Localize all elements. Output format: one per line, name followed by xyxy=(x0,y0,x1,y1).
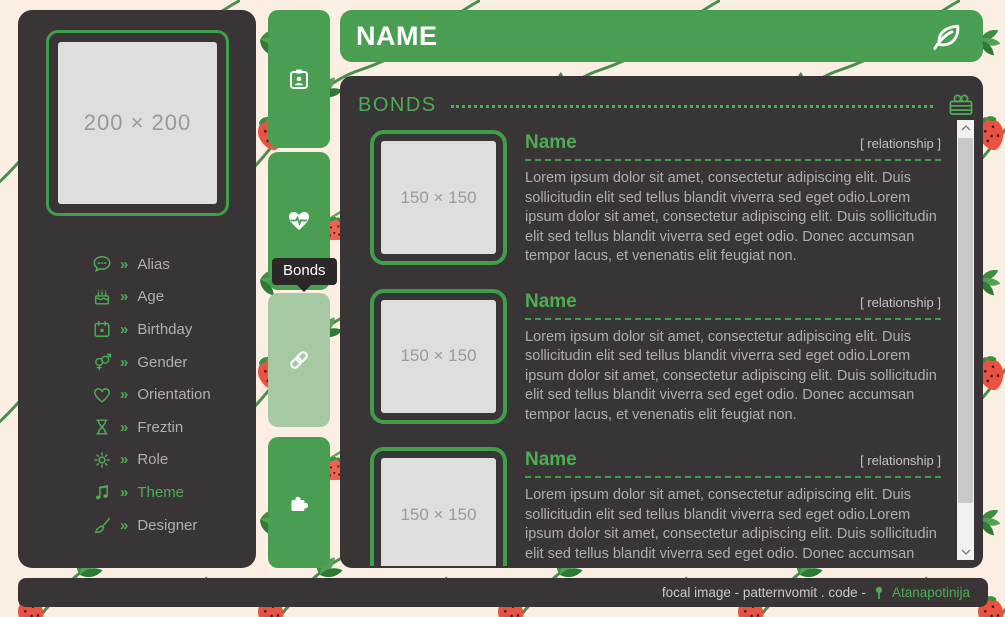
sidebar-item-age: » Age xyxy=(18,281,256,314)
comment-icon xyxy=(92,254,112,274)
calendar-icon xyxy=(92,319,112,339)
sidebar-item-theme: » Theme xyxy=(18,476,256,509)
venus-mars-icon xyxy=(92,352,112,372)
sidebar-item-label: Birthday xyxy=(137,321,192,338)
bond-image-frame: 150 × 150 xyxy=(370,130,507,265)
footer-credit-link[interactable]: Atanapotinija xyxy=(892,585,970,600)
page-title: NAME xyxy=(356,21,438,52)
hourglass-icon xyxy=(92,417,112,437)
gear-icon xyxy=(92,450,112,470)
chevron-right-icon: » xyxy=(120,386,128,403)
dashed-divider xyxy=(525,318,941,320)
chevron-right-icon: » xyxy=(120,354,128,371)
leaf-icon xyxy=(929,20,963,52)
bond-description: Lorem ipsum dolor sit amet, consectetur … xyxy=(525,486,941,566)
sidebar-item-freztin: » Freztin xyxy=(18,411,256,444)
chevron-right-icon: » xyxy=(120,451,128,468)
sidebar-item-label: Orientation xyxy=(137,386,210,403)
tab-extras[interactable] xyxy=(268,437,330,568)
link-icon xyxy=(287,348,311,372)
profile-sidebar: 200 × 200 » Alias » Age xyxy=(18,10,256,568)
sidebar-item-label: Freztin xyxy=(137,419,183,436)
scrollbar[interactable] xyxy=(957,120,974,560)
bonds-section-header: BONDS xyxy=(358,90,975,120)
chevron-down-icon xyxy=(961,549,971,555)
bond-relationship: [ relationship ] xyxy=(860,453,941,468)
profile-field-list: » Alias » Age » B xyxy=(18,248,256,541)
sidebar-item-label: Gender xyxy=(137,354,187,371)
sidebar-item-designer: » Designer xyxy=(18,509,256,542)
sidebar-item-label: Age xyxy=(137,288,164,305)
heart-pulse-icon xyxy=(287,209,311,233)
chevron-right-icon: » xyxy=(120,321,128,338)
bond-image-placeholder: 150 × 150 xyxy=(381,141,496,254)
chevron-right-icon: » xyxy=(120,517,128,534)
footer-credit: focal image - patternvomit . code - xyxy=(662,585,866,600)
chevron-right-icon: » xyxy=(120,256,128,273)
sidebar-item-gender: » Gender xyxy=(18,346,256,379)
bond-relationship: [ relationship ] xyxy=(860,136,941,151)
bond-entry-list: 150 × 150 Name [ relationship ] Lorem ip… xyxy=(370,130,941,566)
bonds-section-title: BONDS xyxy=(358,94,437,117)
bonds-panel: BONDS 150 × 150 Name [ re xyxy=(340,76,983,568)
sidebar-item-label: Role xyxy=(137,451,168,468)
theme-link[interactable]: Theme xyxy=(137,484,184,501)
music-icon xyxy=(92,482,112,502)
sidebar-item-orientation: » Orientation xyxy=(18,378,256,411)
profile-image-frame: 200 × 200 xyxy=(46,30,229,216)
scroll-down-button[interactable] xyxy=(957,544,974,560)
tab-profile[interactable] xyxy=(268,10,330,148)
bond-name[interactable]: Name xyxy=(525,132,577,154)
footer-bar: focal image - patternvomit . code - Atan… xyxy=(18,578,988,607)
sidebar-item-alias: » Alias xyxy=(18,248,256,281)
chevron-up-icon xyxy=(961,125,971,131)
scroll-up-button[interactable] xyxy=(957,120,974,136)
sidebar-item-label: Alias xyxy=(137,256,170,273)
heart-icon xyxy=(92,385,112,405)
bond-image-frame: 150 × 150 xyxy=(370,447,507,566)
bond-name[interactable]: Name xyxy=(525,291,577,313)
page: 200 × 200 » Alias » Age xyxy=(0,0,1005,617)
bond-name[interactable]: Name xyxy=(525,449,577,471)
scrollbar-thumb[interactable] xyxy=(958,138,973,503)
bond-entry-body: Name [ relationship ] Lorem ipsum dolor … xyxy=(525,130,941,267)
dashed-divider xyxy=(525,159,941,161)
sidebar-item-label: Designer xyxy=(137,517,197,534)
bond-entry: 150 × 150 Name [ relationship ] Lorem ip… xyxy=(370,130,941,267)
bond-image-placeholder: 150 × 150 xyxy=(381,300,496,413)
bond-image-frame: 150 × 150 xyxy=(370,289,507,424)
crate-icon xyxy=(947,92,975,118)
bond-image-placeholder: 150 × 150 xyxy=(381,458,496,566)
sidebar-item-role: » Role xyxy=(18,444,256,477)
profile-image-placeholder: 200 × 200 xyxy=(58,42,217,204)
name-header: NAME xyxy=(340,10,983,62)
bond-description: Lorem ipsum dolor sit amet, consectetur … xyxy=(525,169,941,267)
chevron-right-icon: » xyxy=(120,288,128,305)
chevron-right-icon: » xyxy=(120,419,128,436)
cake-icon xyxy=(92,287,112,307)
tab-bonds[interactable] xyxy=(268,293,330,427)
map-pin-icon xyxy=(873,585,885,601)
dotted-leader xyxy=(451,105,933,108)
bonds-tooltip: Bonds xyxy=(272,258,337,285)
bond-entry-body: Name [ relationship ] Lorem ipsum dolor … xyxy=(525,447,941,566)
chevron-right-icon: » xyxy=(120,484,128,501)
bond-entry: 150 × 150 Name [ relationship ] Lorem ip… xyxy=(370,289,941,426)
dashed-divider xyxy=(525,476,941,478)
id-badge-icon xyxy=(287,67,311,91)
bond-description: Lorem ipsum dolor sit amet, consectetur … xyxy=(525,328,941,426)
bond-entry-body: Name [ relationship ] Lorem ipsum dolor … xyxy=(525,289,941,426)
puzzle-icon xyxy=(287,491,311,515)
sidebar-item-birthday: » Birthday xyxy=(18,313,256,346)
bond-entry: 150 × 150 Name [ relationship ] Lorem ip… xyxy=(370,447,941,566)
paintbrush-icon xyxy=(92,515,112,535)
bond-relationship: [ relationship ] xyxy=(860,295,941,310)
